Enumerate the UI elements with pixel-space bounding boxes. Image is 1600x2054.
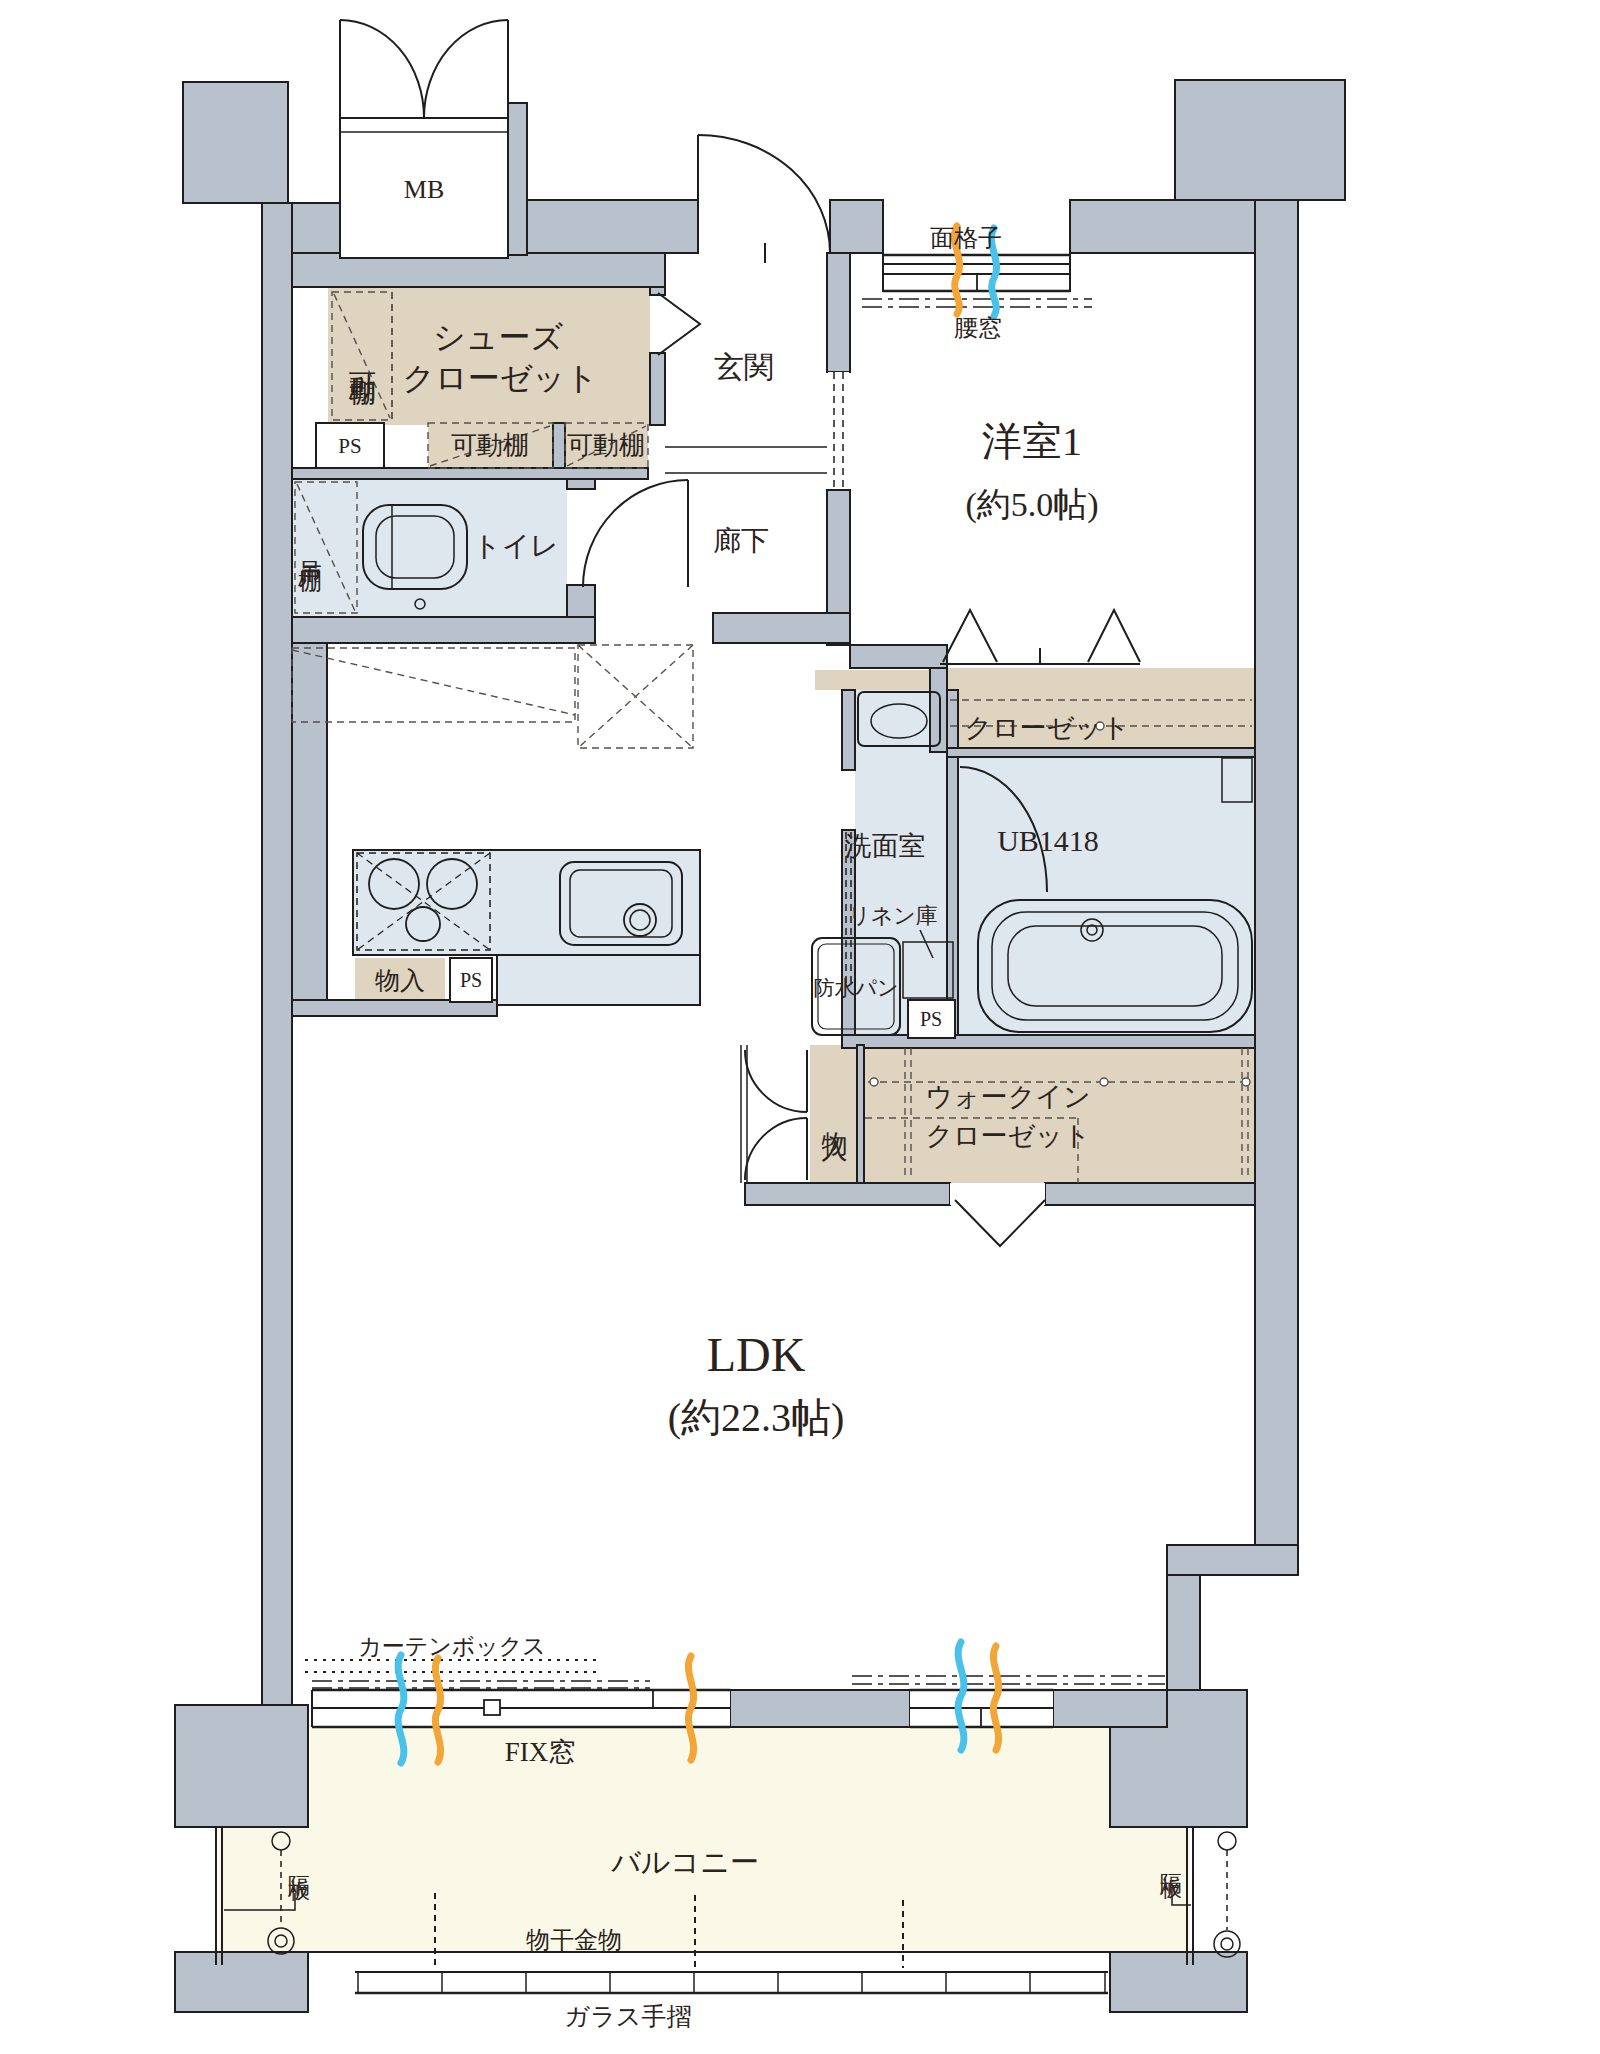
linen-storage-label: リネン庫: [848, 905, 938, 927]
shoes-closet-label-line2: クローゼット: [402, 362, 598, 394]
movable-shelf-a-label: 可動棚: [451, 433, 529, 459]
waist-window-label: 腰窓: [954, 316, 1002, 340]
balcony-floor: [218, 1727, 1190, 1952]
storage-a-label: 物入: [821, 1111, 847, 1117]
entrance-label: 玄関: [714, 352, 774, 382]
laundry-hanger-label: 物干金物: [526, 1928, 622, 1952]
shoes-closet-label-line1: シューズ: [433, 321, 563, 353]
partition-left-label: 隔板: [288, 1859, 310, 1865]
meter-box-label: MB: [404, 177, 444, 203]
western1-name: 洋室1: [982, 422, 1082, 462]
toilet-label: トイレ: [473, 532, 559, 560]
pipe-space-b-label: PS: [920, 1009, 942, 1029]
hanging-cupboard-label: 吊戸棚: [298, 544, 322, 553]
ldk-size: (約22.3帖): [668, 1398, 845, 1438]
wic-label-line2: クローゼット: [925, 1123, 1090, 1150]
washroom-label: 洗面室: [845, 833, 926, 860]
balcony-label: バルコニー: [611, 1848, 759, 1877]
pipe-space-c-label: PS: [460, 970, 482, 990]
wic-label-line1: ウォークイン: [925, 1084, 1090, 1111]
ldk-name: LDK: [707, 1331, 806, 1379]
floorplan: MB 面格子 腰窓 洋室1 (約5.0帖) 玄関 廊下 シューズ クローゼット …: [0, 0, 1600, 2054]
partition-right-label: 隔板: [1160, 1857, 1182, 1863]
storage-b-label: 物入: [375, 968, 425, 993]
pipe-space-a-label: PS: [338, 436, 361, 457]
waterproof-pan-label: 防水パン: [814, 978, 899, 999]
hallway-label: 廊下: [713, 527, 769, 555]
movable-shelf-b-label: 可動棚: [567, 433, 645, 459]
floorplan-drawing: [0, 0, 1600, 2054]
face-grille-label: 面格子: [930, 226, 1002, 250]
unit-bath-label: UB1418: [997, 826, 1099, 856]
movable-shelf-side-label: 可動棚: [349, 352, 376, 361]
fix-window-label: FIX窓: [505, 1739, 576, 1766]
curtain-box-label: カーテンボックス: [358, 1635, 546, 1658]
glass-handrail-label: ガラス手摺: [565, 2004, 692, 2029]
closet-label: クローゼット: [964, 715, 1129, 742]
western1-size: (約5.0帖): [965, 488, 1098, 522]
